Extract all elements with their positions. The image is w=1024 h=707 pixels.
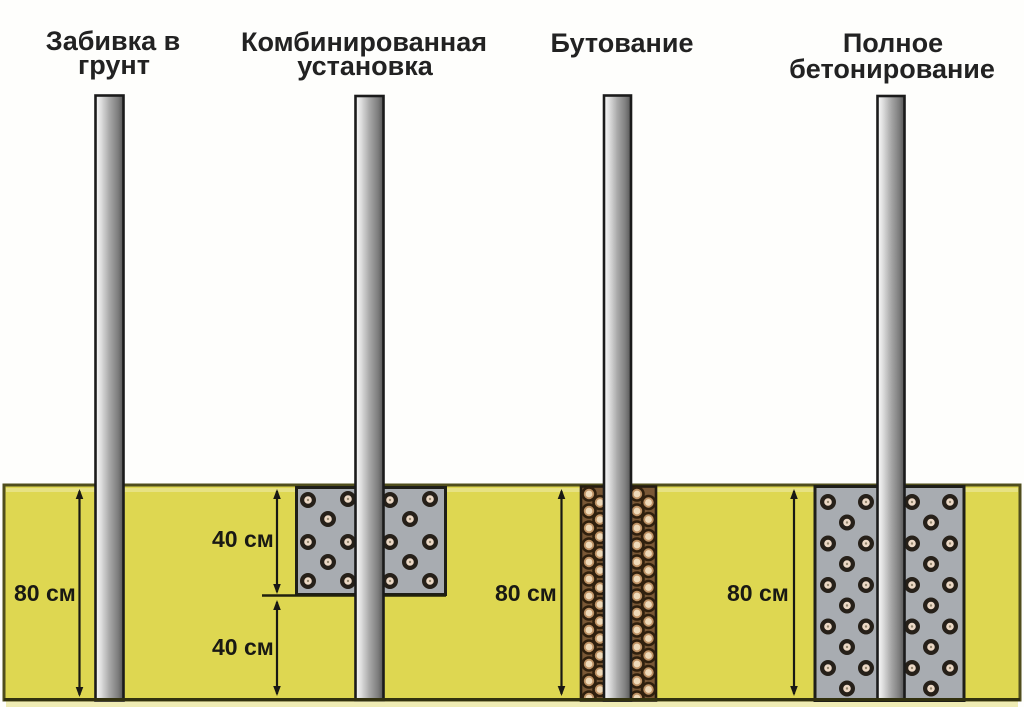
svg-text:80 см: 80 см [14,580,76,606]
svg-text:бетонирование: бетонирование [789,54,995,84]
svg-text:установка: установка [297,51,434,81]
svg-text:Бутование: Бутование [551,28,694,58]
svg-text:80 см: 80 см [495,580,557,606]
svg-text:40 см: 40 см [212,526,274,552]
svg-text:грунт: грунт [78,50,150,80]
svg-text:40 см: 40 см [212,634,274,660]
svg-text:80 см: 80 см [727,580,789,606]
